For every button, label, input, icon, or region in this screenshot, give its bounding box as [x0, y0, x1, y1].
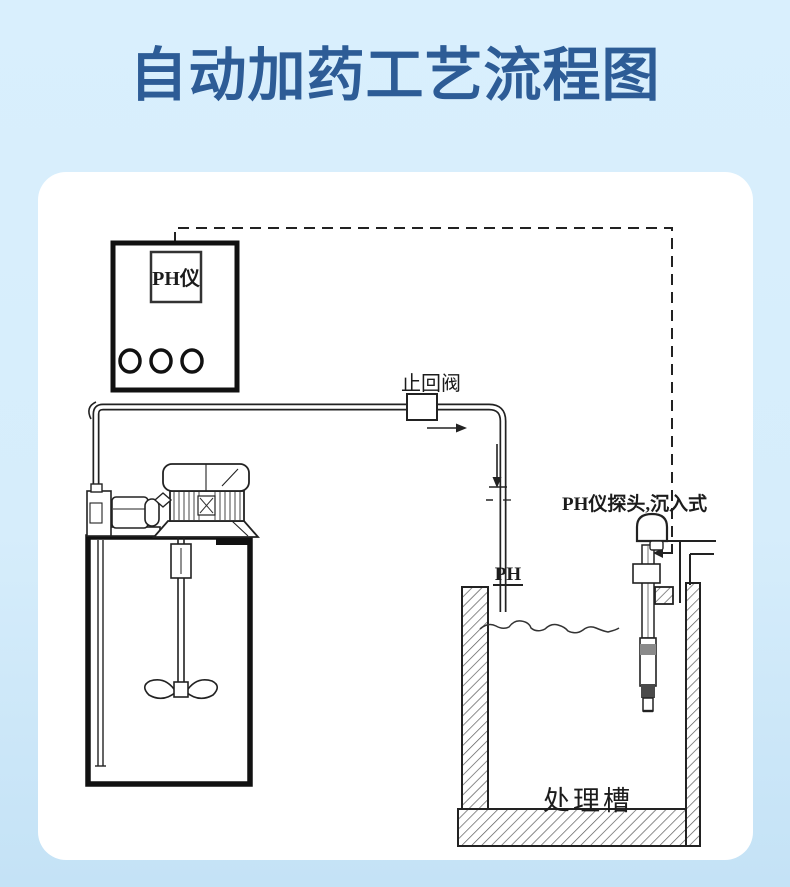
- mixer-base: [154, 521, 258, 537]
- probe-cap-tab: [650, 541, 663, 550]
- probe-band-dark: [641, 684, 655, 698]
- probe-clamp: [633, 564, 660, 583]
- probe-tip: [643, 698, 653, 711]
- water-line: [480, 621, 619, 633]
- flow-arrowhead-right: [456, 424, 467, 433]
- check-valve-label: 止回阀: [401, 372, 461, 395]
- flow-arrows: [427, 424, 511, 501]
- dosing-pump: [87, 484, 160, 536]
- mount-block: [655, 587, 673, 604]
- pipe-outlet: PH: [493, 564, 523, 585]
- treatment-tank: 处理槽: [458, 583, 700, 846]
- process-diagram: PH仪 止回阀 PH: [0, 0, 790, 887]
- probe-label: PH仪探头,沉入式: [562, 492, 707, 515]
- controller-knob: [120, 350, 140, 372]
- probe-cap: [637, 514, 667, 541]
- ph-controller: PH仪: [113, 243, 237, 390]
- controller-knob: [151, 350, 171, 372]
- tank-wall-right: [686, 583, 700, 846]
- controller-knob: [182, 350, 202, 372]
- controller-label: PH仪: [152, 267, 201, 290]
- mixer-motor: [154, 464, 258, 537]
- treatment-tank-label: 处理槽: [543, 786, 633, 816]
- chemical-tank: [88, 533, 252, 784]
- tank-wall-left: [462, 587, 488, 809]
- pipe-outlet-label: PH: [495, 564, 522, 585]
- propeller: [145, 680, 218, 699]
- probe-band-gray: [640, 644, 656, 655]
- check-valve: 止回阀: [401, 372, 461, 420]
